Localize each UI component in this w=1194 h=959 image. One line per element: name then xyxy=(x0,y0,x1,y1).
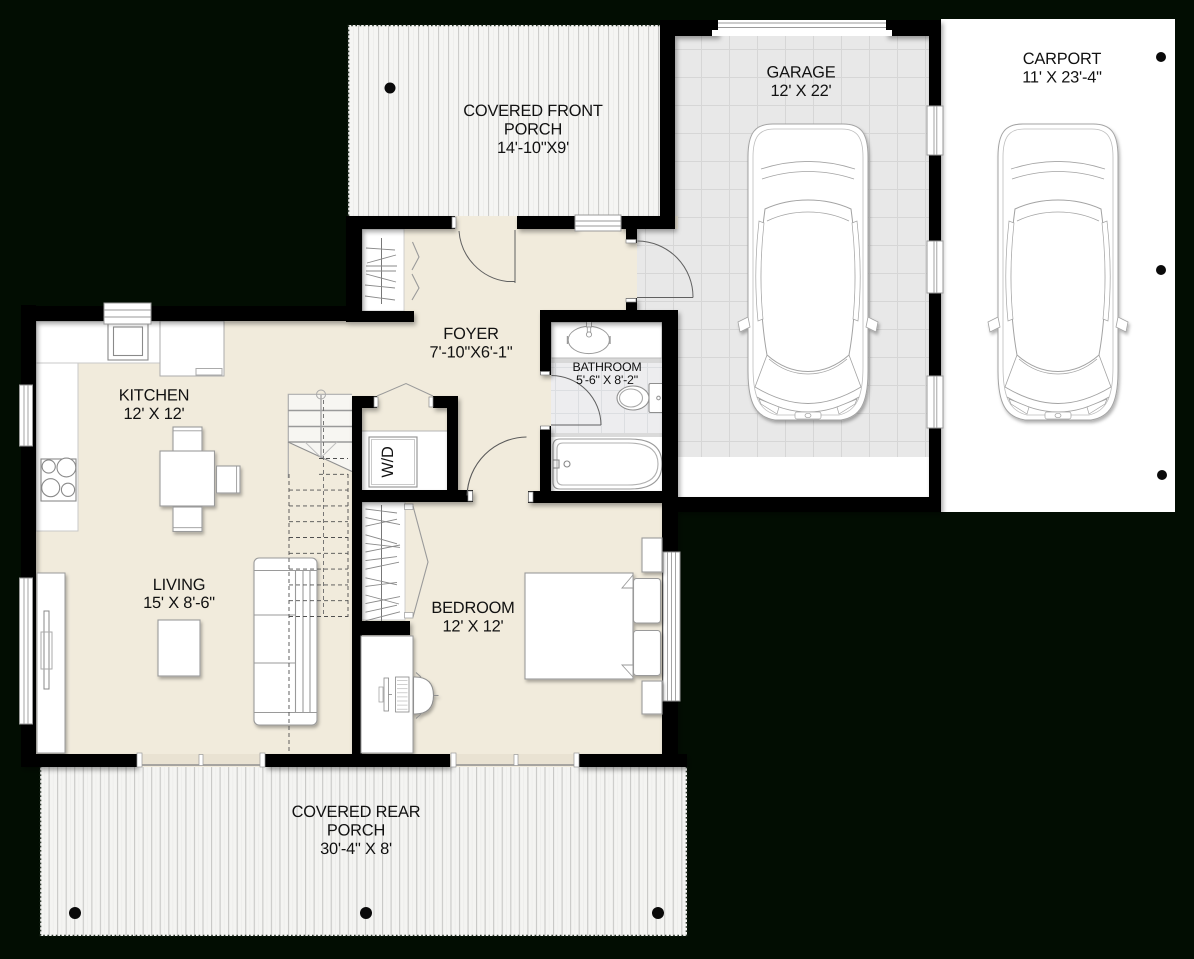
svg-text:COVERED REAR: COVERED REAR xyxy=(292,803,421,821)
svg-text:12' X 12': 12' X 12' xyxy=(443,618,504,636)
svg-text:7'-10"X6'-1": 7'-10"X6'-1" xyxy=(430,344,513,362)
svg-text:15' X 8'-6": 15' X 8'-6" xyxy=(143,594,215,612)
svg-text:30'-4" X 8': 30'-4" X 8' xyxy=(320,840,392,858)
svg-text:BATHROOM: BATHROOM xyxy=(572,360,641,374)
svg-text:CARPORT: CARPORT xyxy=(1023,50,1102,68)
svg-text:COVERED FRONT: COVERED FRONT xyxy=(463,102,603,120)
svg-text:11' X 23'-4": 11' X 23'-4" xyxy=(1022,69,1102,87)
svg-text:KITCHEN: KITCHEN xyxy=(119,387,190,405)
svg-text:LIVING: LIVING xyxy=(153,576,206,594)
svg-text:GARAGE: GARAGE xyxy=(767,64,836,82)
svg-text:PORCH: PORCH xyxy=(504,121,562,139)
svg-text:PORCH: PORCH xyxy=(327,822,385,840)
svg-text:5'-6" X 8'-2": 5'-6" X 8'-2" xyxy=(576,373,638,387)
svg-text:BEDROOM: BEDROOM xyxy=(431,599,514,617)
svg-text:12' X 12': 12' X 12' xyxy=(124,405,185,423)
svg-text:12' X 22': 12' X 22' xyxy=(771,82,832,100)
svg-text:FOYER: FOYER xyxy=(443,325,499,343)
svg-text:W/D: W/D xyxy=(379,446,397,478)
svg-text:14'-10"X9': 14'-10"X9' xyxy=(497,139,569,157)
